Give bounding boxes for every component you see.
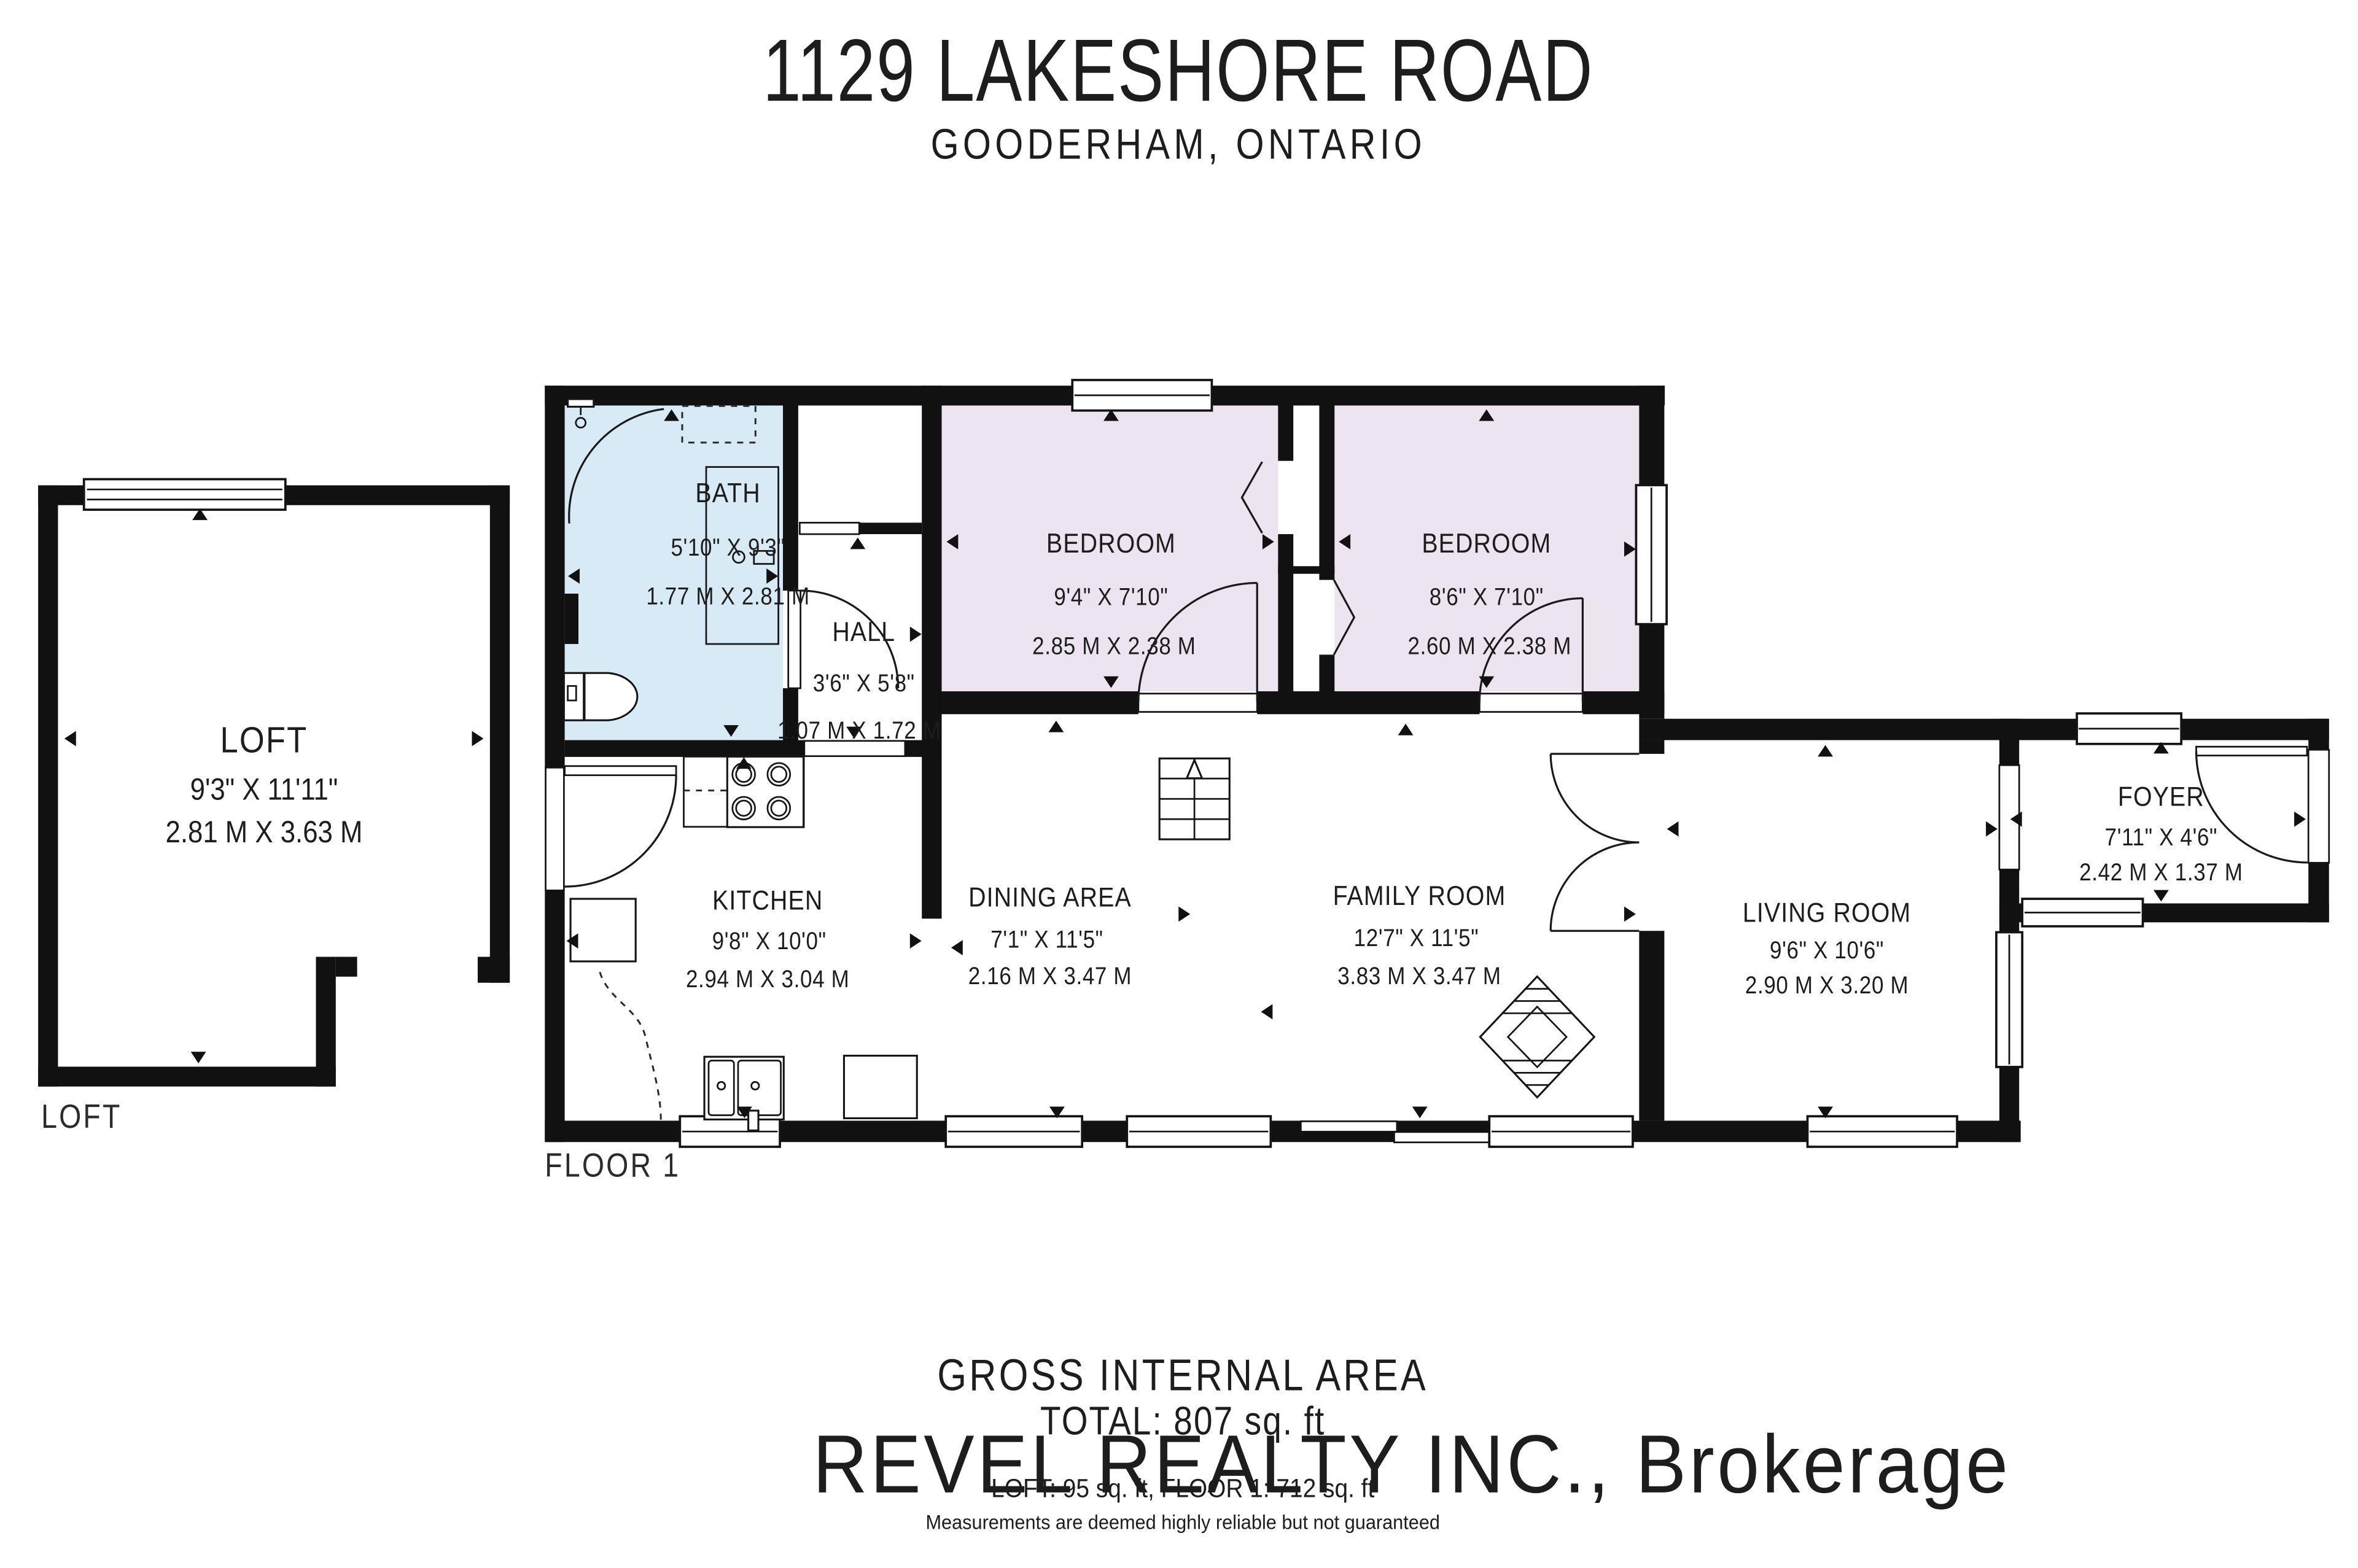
window xyxy=(1072,380,1212,411)
wall-segment xyxy=(545,890,564,1142)
dim-arrow-icon xyxy=(1261,1004,1272,1020)
wall-segment xyxy=(1999,869,2019,932)
toilet xyxy=(564,673,637,720)
wall-segment xyxy=(1639,386,1664,485)
room-label-loft-imperial: 9'3" X 11'11" xyxy=(190,772,338,806)
room-fills xyxy=(565,405,1640,740)
wall-segment xyxy=(1639,624,1664,719)
room-label-bedroom1-imperial: 9'4" X 7'10" xyxy=(1054,583,1168,610)
room-label-living-imperial: 9'6" X 10'6" xyxy=(1770,936,1884,964)
dim-arrow-icon xyxy=(2294,812,2306,827)
page-subtitle: GOODERHAM, ONTARIO xyxy=(931,120,1426,168)
room-label-living-metric: 2.90 M X 3.20 M xyxy=(1745,971,1909,999)
footer: GROSS INTERNAL AREA TOTAL: 807 sq. ft RE… xyxy=(813,1351,2011,1534)
floorplan-canvas: 1129 LAKESHORE ROAD GOODERHAM, ONTARIO xyxy=(0,0,2358,1568)
dim-arrow-icon xyxy=(910,627,922,642)
wall-segment xyxy=(545,386,564,767)
dim-arrow-icon xyxy=(64,731,76,747)
room-label-hall-imperial: 3'6" X 5'8" xyxy=(813,669,915,697)
dim-arrow-icon xyxy=(1398,724,1414,735)
wood-stove xyxy=(1480,977,1594,1098)
wall-segment xyxy=(2308,719,2329,750)
room-label-foyer-imperial: 7'11" X 4'6" xyxy=(2105,823,2217,851)
door-opening xyxy=(1479,694,1582,712)
room-label-kitchen-imperial: 9'8" X 10'0" xyxy=(712,927,827,955)
dim-arrow-icon xyxy=(472,731,483,747)
header: 1129 LAKESHORE ROAD GOODERHAM, ONTARIO xyxy=(763,21,1593,168)
room-label-bath-imperial: 5'10" X 9'3" xyxy=(671,534,785,561)
dim-arrow-icon xyxy=(910,933,922,949)
window xyxy=(2022,899,2142,926)
door-opening xyxy=(800,522,859,534)
wall-segment xyxy=(1999,719,2019,766)
kitchen-sink xyxy=(704,1057,784,1130)
wall-segment xyxy=(336,957,357,976)
dim-arrow-icon xyxy=(1624,906,1636,922)
room-label-hall-metric: 1.07 M X 1.72 M xyxy=(777,716,941,744)
wall-segment xyxy=(2308,863,2329,922)
door-opening xyxy=(546,767,564,890)
dim-arrow-icon xyxy=(1986,821,1998,837)
wall-segment xyxy=(478,957,510,982)
wall-segment xyxy=(1319,405,1334,580)
window xyxy=(1996,932,2022,1066)
wall-segment xyxy=(1278,405,1293,460)
wall-segment xyxy=(783,405,798,591)
page-title: 1129 LAKESHORE ROAD xyxy=(763,21,1593,120)
wall-segment xyxy=(1639,931,1664,1120)
room-label-bedroom1-metric: 2.85 M X 2.38 M xyxy=(1032,632,1196,659)
room-label-foyer-metric: 2.42 M X 1.37 M xyxy=(2079,858,2243,886)
dim-arrow-icon xyxy=(1818,745,1833,756)
window xyxy=(1808,1116,1958,1147)
room-label-bedroom1-name: BEDROOM xyxy=(1046,527,1176,558)
wall-segment xyxy=(1639,740,1664,754)
wall-segment xyxy=(942,691,1138,714)
window xyxy=(2077,713,2181,744)
room-label-bedroom2-imperial: 8'6" X 7'10" xyxy=(1430,583,1544,610)
wall-segment xyxy=(922,386,941,918)
wall-segment xyxy=(38,485,58,1086)
door-opening xyxy=(2308,750,2329,863)
dim-arrow-icon xyxy=(2154,890,2169,902)
room-label-dining-name: DINING AREA xyxy=(968,882,1132,912)
kitchen-entry-door xyxy=(565,766,676,887)
window xyxy=(1489,1116,1633,1147)
wall-segment xyxy=(1278,566,1334,573)
room-label-dining-imperial: 7'1" X 11'5" xyxy=(990,925,1103,953)
room-label-bedroom2-metric: 2.60 M X 2.38 M xyxy=(1408,632,1571,659)
dim-arrow-icon xyxy=(1412,1107,1428,1119)
family-room-double-door xyxy=(1551,754,1639,931)
sliding-door xyxy=(1394,1132,1489,1143)
wall-segment xyxy=(1319,654,1334,691)
wall-segment xyxy=(859,522,922,534)
dim-arrow-icon xyxy=(1178,906,1190,922)
dim-arrow-icon xyxy=(1667,821,1679,837)
dim-arrow-icon xyxy=(951,940,963,955)
room-label-bedroom2-name: BEDROOM xyxy=(1422,527,1551,558)
window xyxy=(946,1116,1082,1147)
staircase xyxy=(1159,758,1229,839)
disclaimer-label: Measurements are deemed highly reliable … xyxy=(925,1511,1439,1534)
room-label-family-name: FAMILY ROOM xyxy=(1333,880,1506,911)
wall-segment xyxy=(1278,534,1293,691)
room-label-bath-metric: 1.77 M X 2.81 M xyxy=(646,582,809,610)
window xyxy=(84,479,286,510)
window xyxy=(1636,485,1667,624)
wall-segment xyxy=(316,957,335,1086)
area-breakdown-label: LOFT: 95 sq. ft, FLOOR 1: 712 sq. ft xyxy=(991,1473,1374,1503)
room-label-family-imperial: 12'7" X 11'5" xyxy=(1354,924,1479,952)
wall-segment xyxy=(1257,691,1479,714)
wall-segment xyxy=(565,740,804,757)
floor1-floor-label: FLOOR 1 xyxy=(545,1146,680,1184)
room-label-kitchen-name: KITCHEN xyxy=(712,885,823,915)
gross-internal-area-label: GROSS INTERNAL AREA xyxy=(937,1351,1428,1400)
room-label-living-name: LIVING ROOM xyxy=(1743,897,1911,928)
wall-segment xyxy=(38,1066,336,1086)
door-opening xyxy=(1138,694,1257,712)
wall-segment xyxy=(1999,1067,2019,1142)
room-label-loft-metric: 2.81 M X 3.63 M xyxy=(166,815,363,848)
loft-floor-label: LOFT xyxy=(41,1097,122,1135)
dim-arrow-icon xyxy=(1048,721,1064,732)
window xyxy=(1127,1116,1270,1147)
sliding-door xyxy=(1301,1121,1397,1131)
wall-segment xyxy=(565,594,578,644)
wall-segment xyxy=(490,485,510,982)
room-label-dining-metric: 2.16 M X 3.47 M xyxy=(968,962,1132,990)
room-label-hall-name: HALL xyxy=(832,616,895,647)
room-label-loft-name: LOFT xyxy=(220,719,308,760)
dim-arrow-icon xyxy=(850,537,865,549)
room-label-bath-name: BATH xyxy=(695,477,760,508)
room-label-foyer-name: FOYER xyxy=(2118,781,2204,812)
room-label-kitchen-metric: 2.94 M X 3.04 M xyxy=(686,965,849,993)
dim-arrow-icon xyxy=(191,1052,206,1063)
room-label-family-metric: 3.83 M X 3.47 M xyxy=(1337,962,1501,990)
window xyxy=(680,1116,780,1147)
wall-segment xyxy=(1639,719,2329,740)
